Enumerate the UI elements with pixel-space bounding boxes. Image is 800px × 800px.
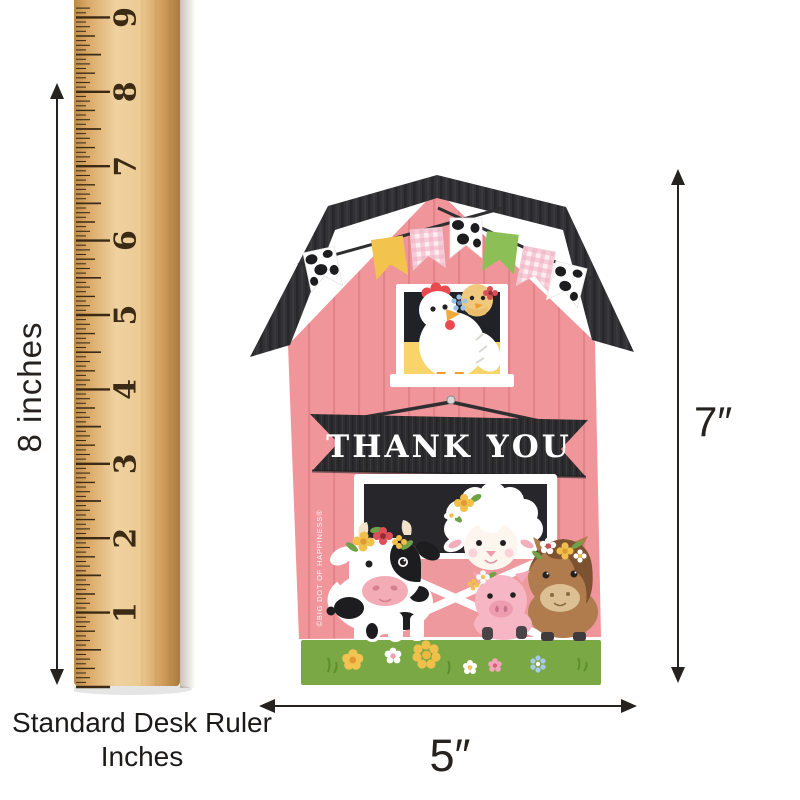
card-height-arrow (660, 168, 696, 684)
arrowhead-up-icon (50, 83, 64, 99)
window-sill (390, 374, 514, 387)
ruler-number: 4 (109, 379, 144, 400)
ruler-edge-shadow (180, 0, 196, 688)
ruler-number: 9 (109, 7, 144, 28)
ruler-caption-line2: Inches (8, 740, 276, 774)
card-copyright: ©BIG DOT OF HAPPINESS® (315, 510, 324, 627)
thank-you-card: ©BIG DOT OF HAPPINESS® (233, 160, 653, 690)
ruler-number: 2 (109, 528, 144, 549)
ruler-caption: Standard Desk Ruler Inches (8, 706, 276, 774)
ruler-height-label: 8 inches (10, 267, 50, 507)
card-width-arrow (258, 688, 638, 724)
arrowhead-down-icon (671, 667, 685, 683)
arrowhead-up-icon (671, 169, 685, 185)
ruler-number: 1 (109, 602, 144, 623)
nail-icon (447, 396, 455, 404)
arrowhead-left-icon (259, 699, 275, 713)
ruler-caption-line1: Standard Desk Ruler (8, 706, 276, 740)
ruler-number: 3 (109, 453, 144, 474)
card-height-label: 7″ (694, 398, 732, 446)
pig-icon (468, 570, 532, 640)
ruler-number: 5 (109, 305, 144, 326)
ruler-number: 7 (109, 156, 144, 177)
card-width-label: 5″ (420, 730, 480, 782)
product-size-chart: 123456789 8 inches Standard Desk Ruler I… (0, 0, 800, 800)
arrowhead-down-icon (50, 669, 64, 685)
ruler-number: 6 (109, 230, 144, 251)
ruler: 123456789 (74, 0, 206, 702)
arrowhead-right-icon (621, 699, 637, 713)
thank-you-text: THANK YOU (326, 429, 572, 465)
ruler-numbers: 123456789 (109, 7, 144, 623)
ruler-number: 8 (109, 81, 144, 102)
